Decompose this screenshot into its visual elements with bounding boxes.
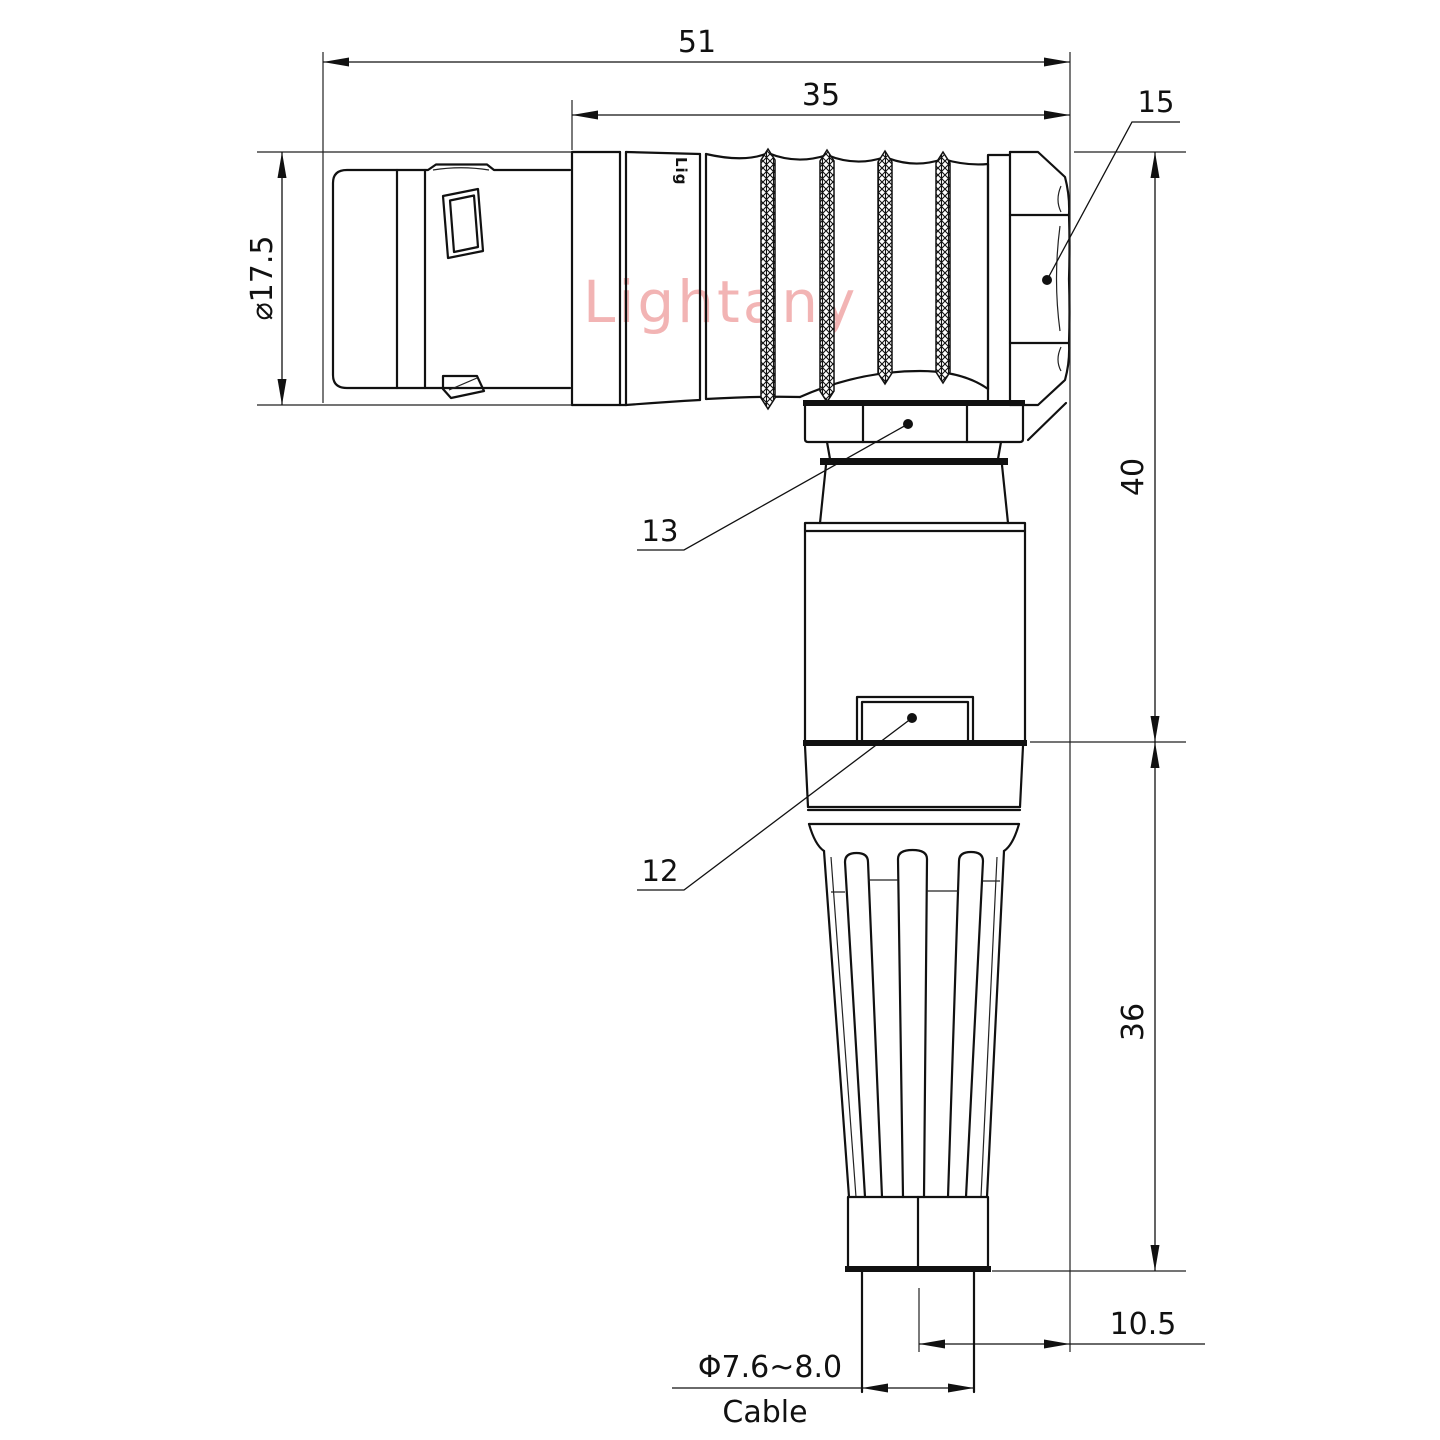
boot-rib xyxy=(898,850,927,1197)
dim-35-text: 35 xyxy=(802,78,840,113)
knurl-band xyxy=(878,151,892,384)
dim-17-5-text: ⌀17.5 xyxy=(245,236,280,321)
dim-front-diameter: ⌀17.5 xyxy=(245,152,287,405)
dim-51-text: 51 xyxy=(678,25,716,60)
watermark-text: Lightany xyxy=(583,268,858,336)
dim-overall-length: 51 xyxy=(323,25,1070,67)
body-marking-text: Lig xyxy=(672,157,690,185)
key-window-inner xyxy=(450,196,478,253)
dim-cable-diameter-text: Φ7.6~8.0 xyxy=(698,1350,842,1385)
elbow-vertical-body xyxy=(803,400,1027,746)
nut-lower-chamfer xyxy=(1028,403,1066,440)
boot-collar xyxy=(805,746,1023,807)
leader-15-text: 15 xyxy=(1138,85,1175,119)
flare-section xyxy=(820,465,1008,523)
boot-cone xyxy=(824,851,1004,1197)
dim-cable-diameter: Φ7.6~8.0 Cable xyxy=(672,1350,974,1430)
boot-rib xyxy=(845,853,882,1197)
leader-13-text: 13 xyxy=(642,514,679,548)
dim-axis-offset: 10.5 xyxy=(919,1307,1205,1349)
shoulder-band xyxy=(805,523,1025,531)
knurl-band xyxy=(936,152,950,383)
boot-rib xyxy=(948,852,983,1197)
drawing-canvas: Lightany Lig xyxy=(0,0,1440,1440)
cable-label-text: Cable xyxy=(722,1395,807,1430)
gland-nut xyxy=(805,406,1023,442)
dim-elbow-height: 40 36 xyxy=(1116,152,1160,1271)
hex-facet-lines xyxy=(1010,215,1069,343)
leader-12-text: 12 xyxy=(642,854,679,888)
vertical-barrel xyxy=(805,531,1025,740)
neck xyxy=(827,442,1001,459)
knurl-band xyxy=(820,150,834,402)
latch-bump-arc xyxy=(433,168,489,170)
dim-10-5-text: 10.5 xyxy=(1110,1307,1177,1342)
strain-relief-boot xyxy=(805,746,1023,1392)
dim-36-text: 36 xyxy=(1116,1003,1151,1041)
end-cap-bottom-edge xyxy=(845,1266,991,1272)
front-release-sleeve xyxy=(333,165,570,399)
knurl-band xyxy=(761,149,775,409)
cable-outline xyxy=(862,1272,974,1392)
leader-12: 12 xyxy=(637,713,917,890)
gland-nut-top-edge xyxy=(803,400,1025,406)
gland-nut-facets xyxy=(863,406,967,442)
hex-nut xyxy=(988,152,1070,440)
technical-drawing-connector: Lightany Lig xyxy=(0,0,1440,1440)
barrel-bottom-edge xyxy=(803,740,1027,746)
dim-body-length: 35 xyxy=(572,78,1070,120)
boot-transition xyxy=(809,824,1019,851)
dim-40-text: 40 xyxy=(1116,458,1151,496)
groove-band xyxy=(820,458,1008,465)
rib-valley-lines xyxy=(831,880,1000,892)
